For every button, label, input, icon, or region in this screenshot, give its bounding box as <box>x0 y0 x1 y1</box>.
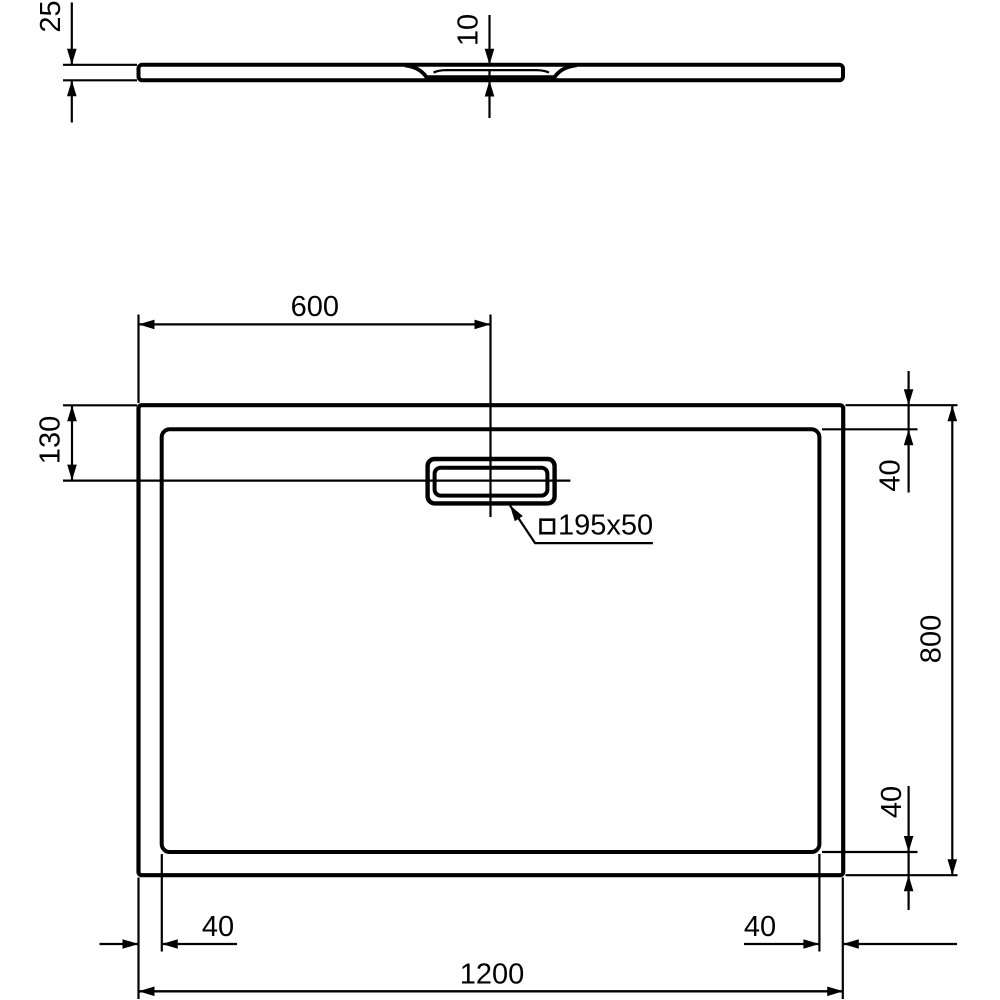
svg-text:195x50: 195x50 <box>558 510 653 542</box>
svg-text:1200: 1200 <box>460 959 525 991</box>
svg-text:800: 800 <box>916 615 948 663</box>
svg-text:40: 40 <box>876 786 908 818</box>
svg-text:10: 10 <box>453 14 485 46</box>
svg-text:40: 40 <box>744 911 776 943</box>
svg-text:600: 600 <box>291 291 339 323</box>
svg-text:40: 40 <box>202 911 234 943</box>
svg-text:130: 130 <box>35 416 67 464</box>
svg-text:40: 40 <box>875 459 907 491</box>
svg-text:25: 25 <box>35 0 67 32</box>
